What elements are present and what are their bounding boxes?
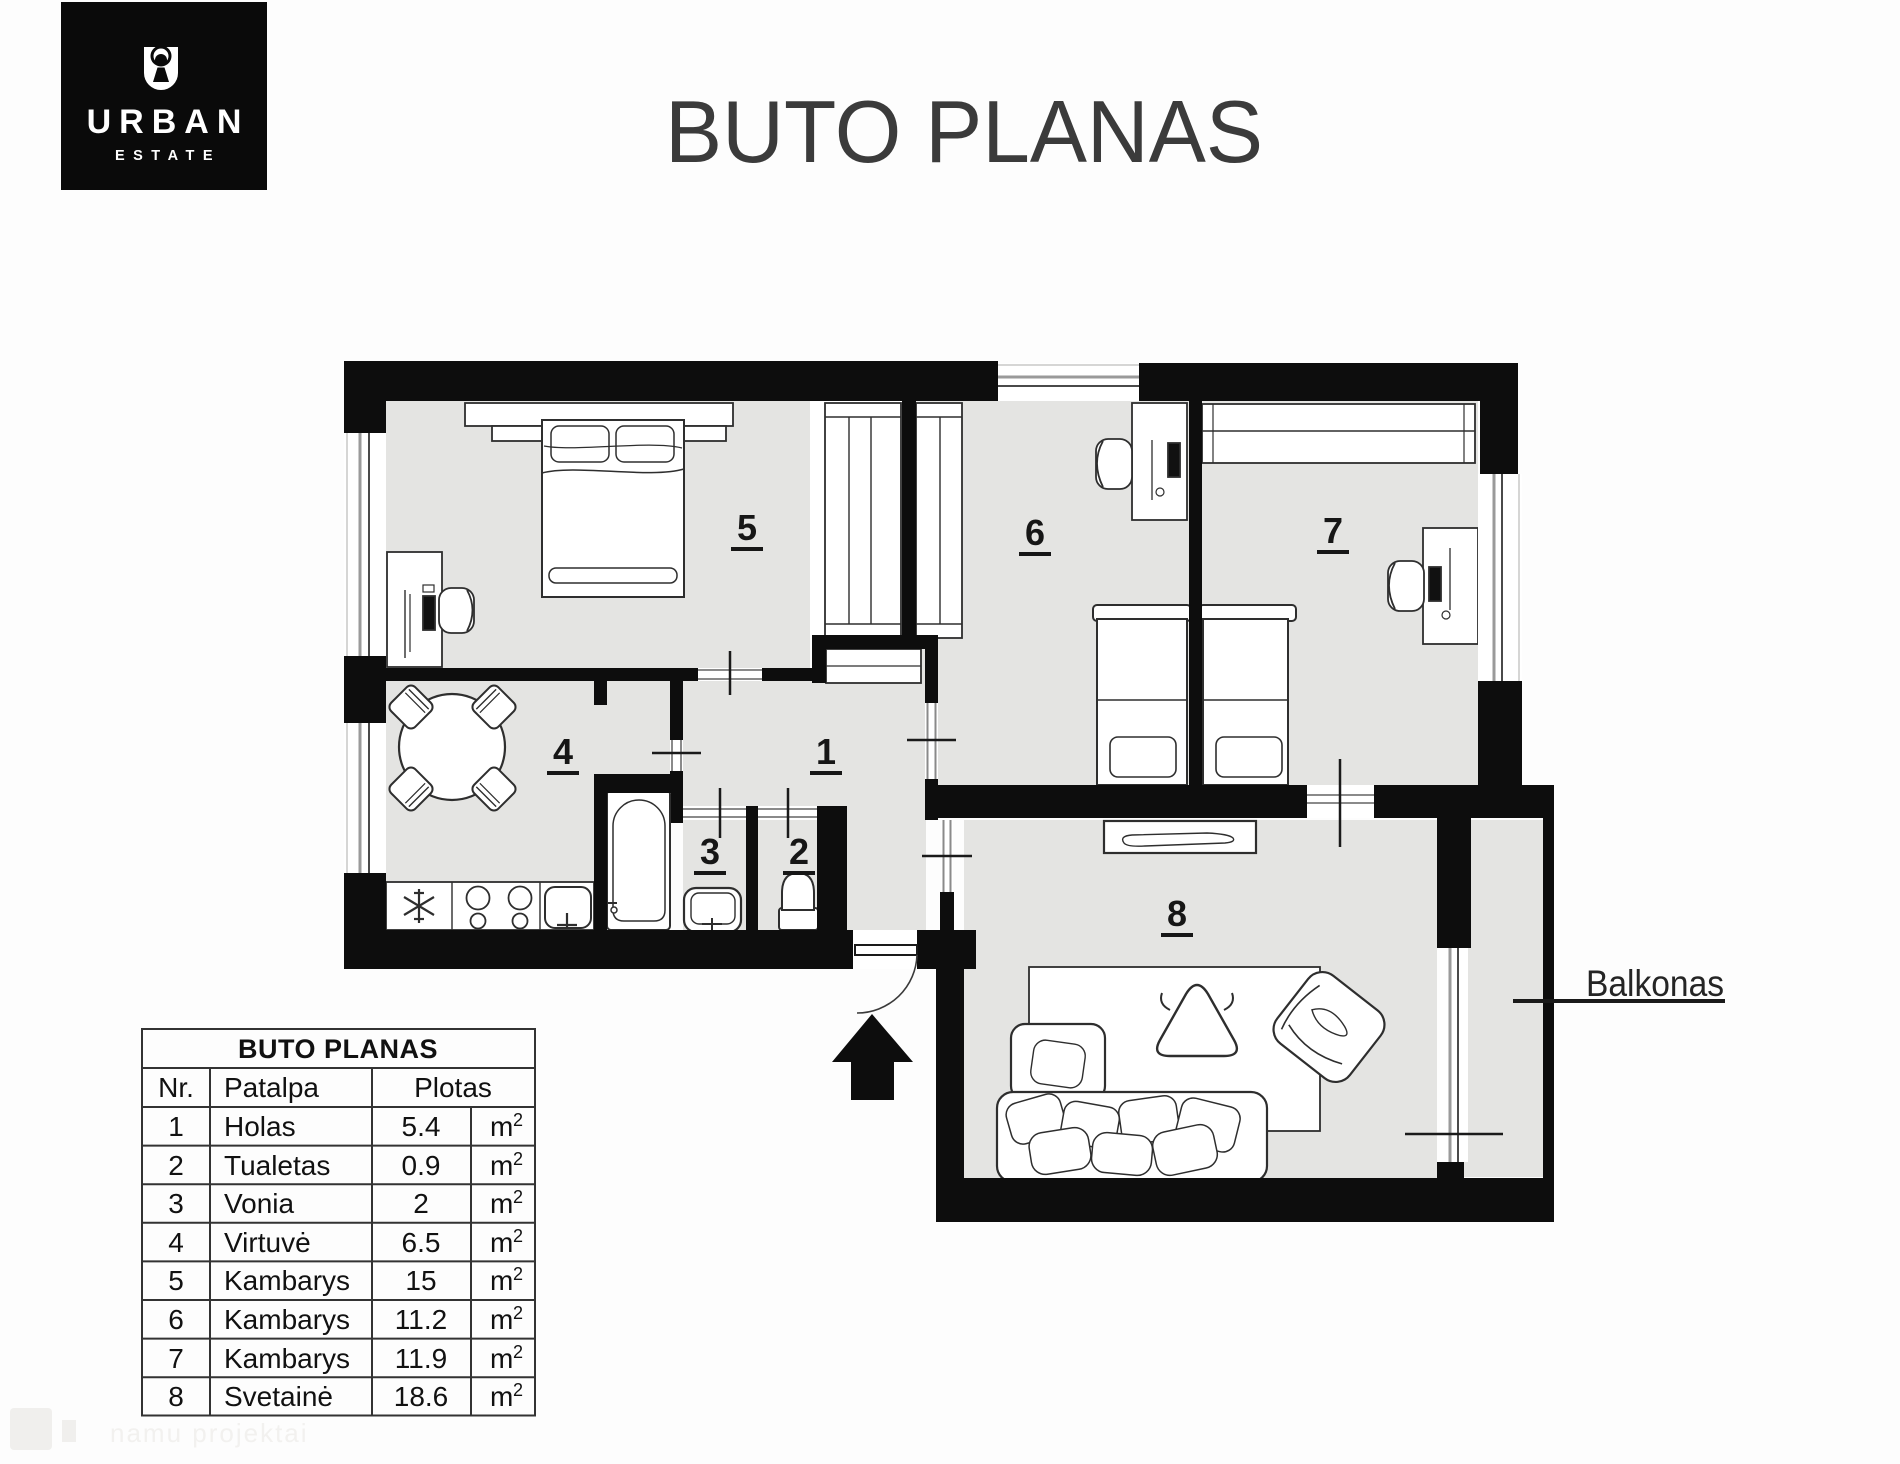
svg-text:6: 6 [168,1304,184,1335]
svg-text:Vonia: Vonia [224,1188,294,1219]
svg-text:6: 6 [1025,512,1045,553]
svg-text:namu projektai: namu projektai [110,1418,309,1448]
svg-text:15: 15 [405,1265,436,1296]
svg-text:2: 2 [513,1149,523,1169]
svg-text:2: 2 [513,1187,523,1207]
svg-text:5: 5 [737,507,757,548]
svg-text:2: 2 [513,1226,523,1246]
svg-text:Tualetas: Tualetas [224,1150,330,1181]
svg-text:m: m [490,1188,513,1219]
svg-text:Holas: Holas [224,1111,296,1142]
svg-text:5: 5 [168,1265,184,1296]
svg-text:m: m [490,1150,513,1181]
svg-text:4: 4 [553,731,573,772]
svg-text:7: 7 [1323,510,1343,551]
svg-text:11.2: 11.2 [395,1304,447,1335]
svg-text:Kambarys: Kambarys [224,1343,350,1374]
svg-text:18.6: 18.6 [394,1381,449,1412]
svg-text:3: 3 [700,831,720,872]
svg-text:m: m [490,1111,513,1142]
svg-text:URBAN: URBAN [87,103,250,141]
svg-text:2: 2 [513,1380,523,1400]
svg-text:m: m [490,1343,513,1374]
svg-text:3: 3 [168,1188,184,1219]
svg-text:BUTO PLANAS: BUTO PLANAS [238,1034,438,1064]
svg-text:Svetainė: Svetainė [224,1381,333,1412]
svg-text:m: m [490,1304,513,1335]
svg-text:11.9: 11.9 [395,1343,447,1374]
svg-text:Nr.: Nr. [158,1072,194,1103]
svg-text:7: 7 [168,1343,184,1374]
svg-text:2: 2 [513,1110,523,1130]
svg-text:2: 2 [789,831,809,872]
svg-text:m: m [490,1227,513,1258]
svg-text:6.5: 6.5 [402,1227,441,1258]
svg-text:Patalpa: Patalpa [224,1072,319,1103]
svg-text:2: 2 [168,1150,184,1181]
svg-text:8: 8 [168,1381,184,1412]
svg-text:5.4: 5.4 [402,1111,441,1142]
svg-text:Kambarys: Kambarys [224,1304,350,1335]
svg-text:Plotas: Plotas [414,1072,492,1103]
svg-text:m: m [490,1381,513,1412]
svg-text:2: 2 [413,1188,429,1219]
svg-text:4: 4 [168,1227,184,1258]
svg-text:0.9: 0.9 [402,1150,441,1181]
svg-text:Virtuvė: Virtuvė [224,1227,311,1258]
svg-text:2: 2 [513,1303,523,1323]
svg-text:2: 2 [513,1264,523,1284]
svg-text:ESTATE: ESTATE [115,148,221,164]
svg-text:Kambarys: Kambarys [224,1265,350,1296]
svg-text:BUTO PLANAS: BUTO PLANAS [665,82,1263,181]
svg-text:1: 1 [168,1111,184,1142]
svg-text:m: m [490,1265,513,1296]
svg-text:8: 8 [1167,893,1187,934]
svg-text:Balkonas: Balkonas [1586,963,1724,1004]
svg-text:2: 2 [513,1342,523,1362]
svg-text:1: 1 [816,731,836,772]
